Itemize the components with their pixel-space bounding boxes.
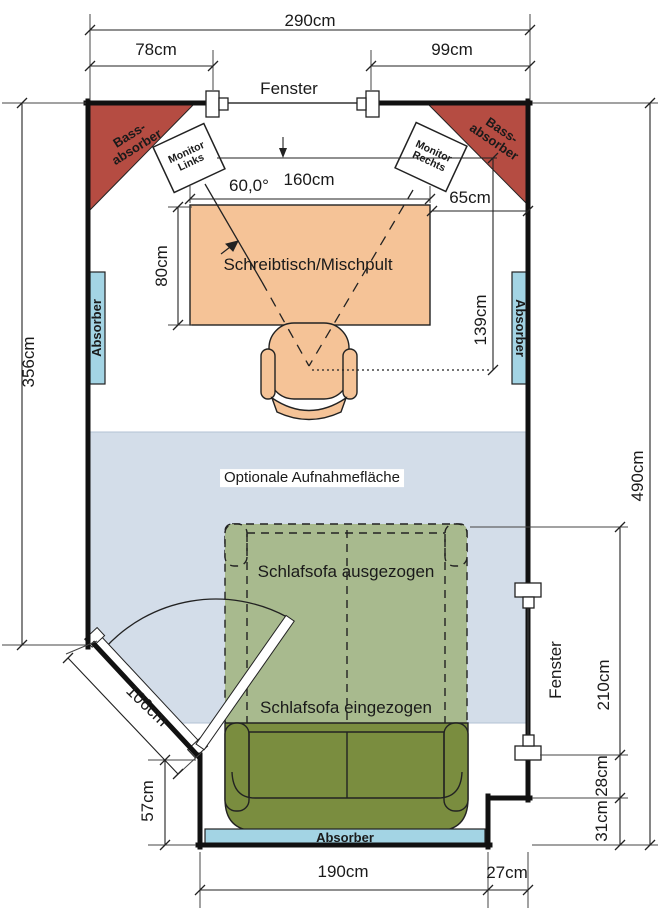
dim-step-upper: 28cm <box>593 755 611 797</box>
sofa-retracted-label: Schlafsofa eingezogen <box>260 699 432 717</box>
chair-shape <box>261 323 357 420</box>
window-symbol-top-left <box>206 91 228 117</box>
down-arrowhead <box>279 148 287 158</box>
sofa-extended-shape <box>225 524 467 727</box>
dim-left-height: 356cm <box>20 336 38 387</box>
dim-listening-angle: 60,0° <box>229 177 269 195</box>
dim-desk-depth: 80cm <box>153 245 171 287</box>
window-symbol-right-lower <box>515 735 541 760</box>
absorber-bottom-label: Absorber <box>316 831 374 845</box>
dim-bottom-step: 27cm <box>486 864 528 882</box>
dim-room-width: 290cm <box>284 12 335 30</box>
window-symbol-top-right <box>357 91 379 117</box>
absorber-left-label: Absorber <box>90 299 104 357</box>
dim-bottom-width: 190cm <box>317 863 368 881</box>
recording-area-label: Optionale Aufnahmefläche <box>220 469 404 487</box>
dim-listening-distance: 139cm <box>472 294 490 345</box>
plan-drawing <box>0 0 672 910</box>
dim-right-window-len: 210cm <box>595 659 613 710</box>
dim-right-window: 99cm <box>431 41 473 59</box>
sofa-retracted-shape <box>225 723 468 831</box>
sofa-extended-label: Schlafsofa ausgezogen <box>258 563 435 581</box>
dim-step-lower: 31cm <box>593 800 611 842</box>
dim-monitor-span: 160cm <box>283 171 334 189</box>
desk-label: Schreibtisch/Mischpult <box>223 256 392 274</box>
window-right-label: Fenster <box>547 641 565 699</box>
dim-lower-left-wall: 57cm <box>139 780 157 822</box>
floor-plan: 290cm 78cm 99cm Fenster Bass- absorber B… <box>0 0 672 910</box>
dim-desk-to-wall: 65cm <box>449 189 491 207</box>
absorber-right-label: Absorber <box>513 299 527 357</box>
dim-left-window: 78cm <box>135 41 177 59</box>
dim-right-height: 490cm <box>629 450 647 501</box>
window-top-label: Fenster <box>260 80 318 98</box>
